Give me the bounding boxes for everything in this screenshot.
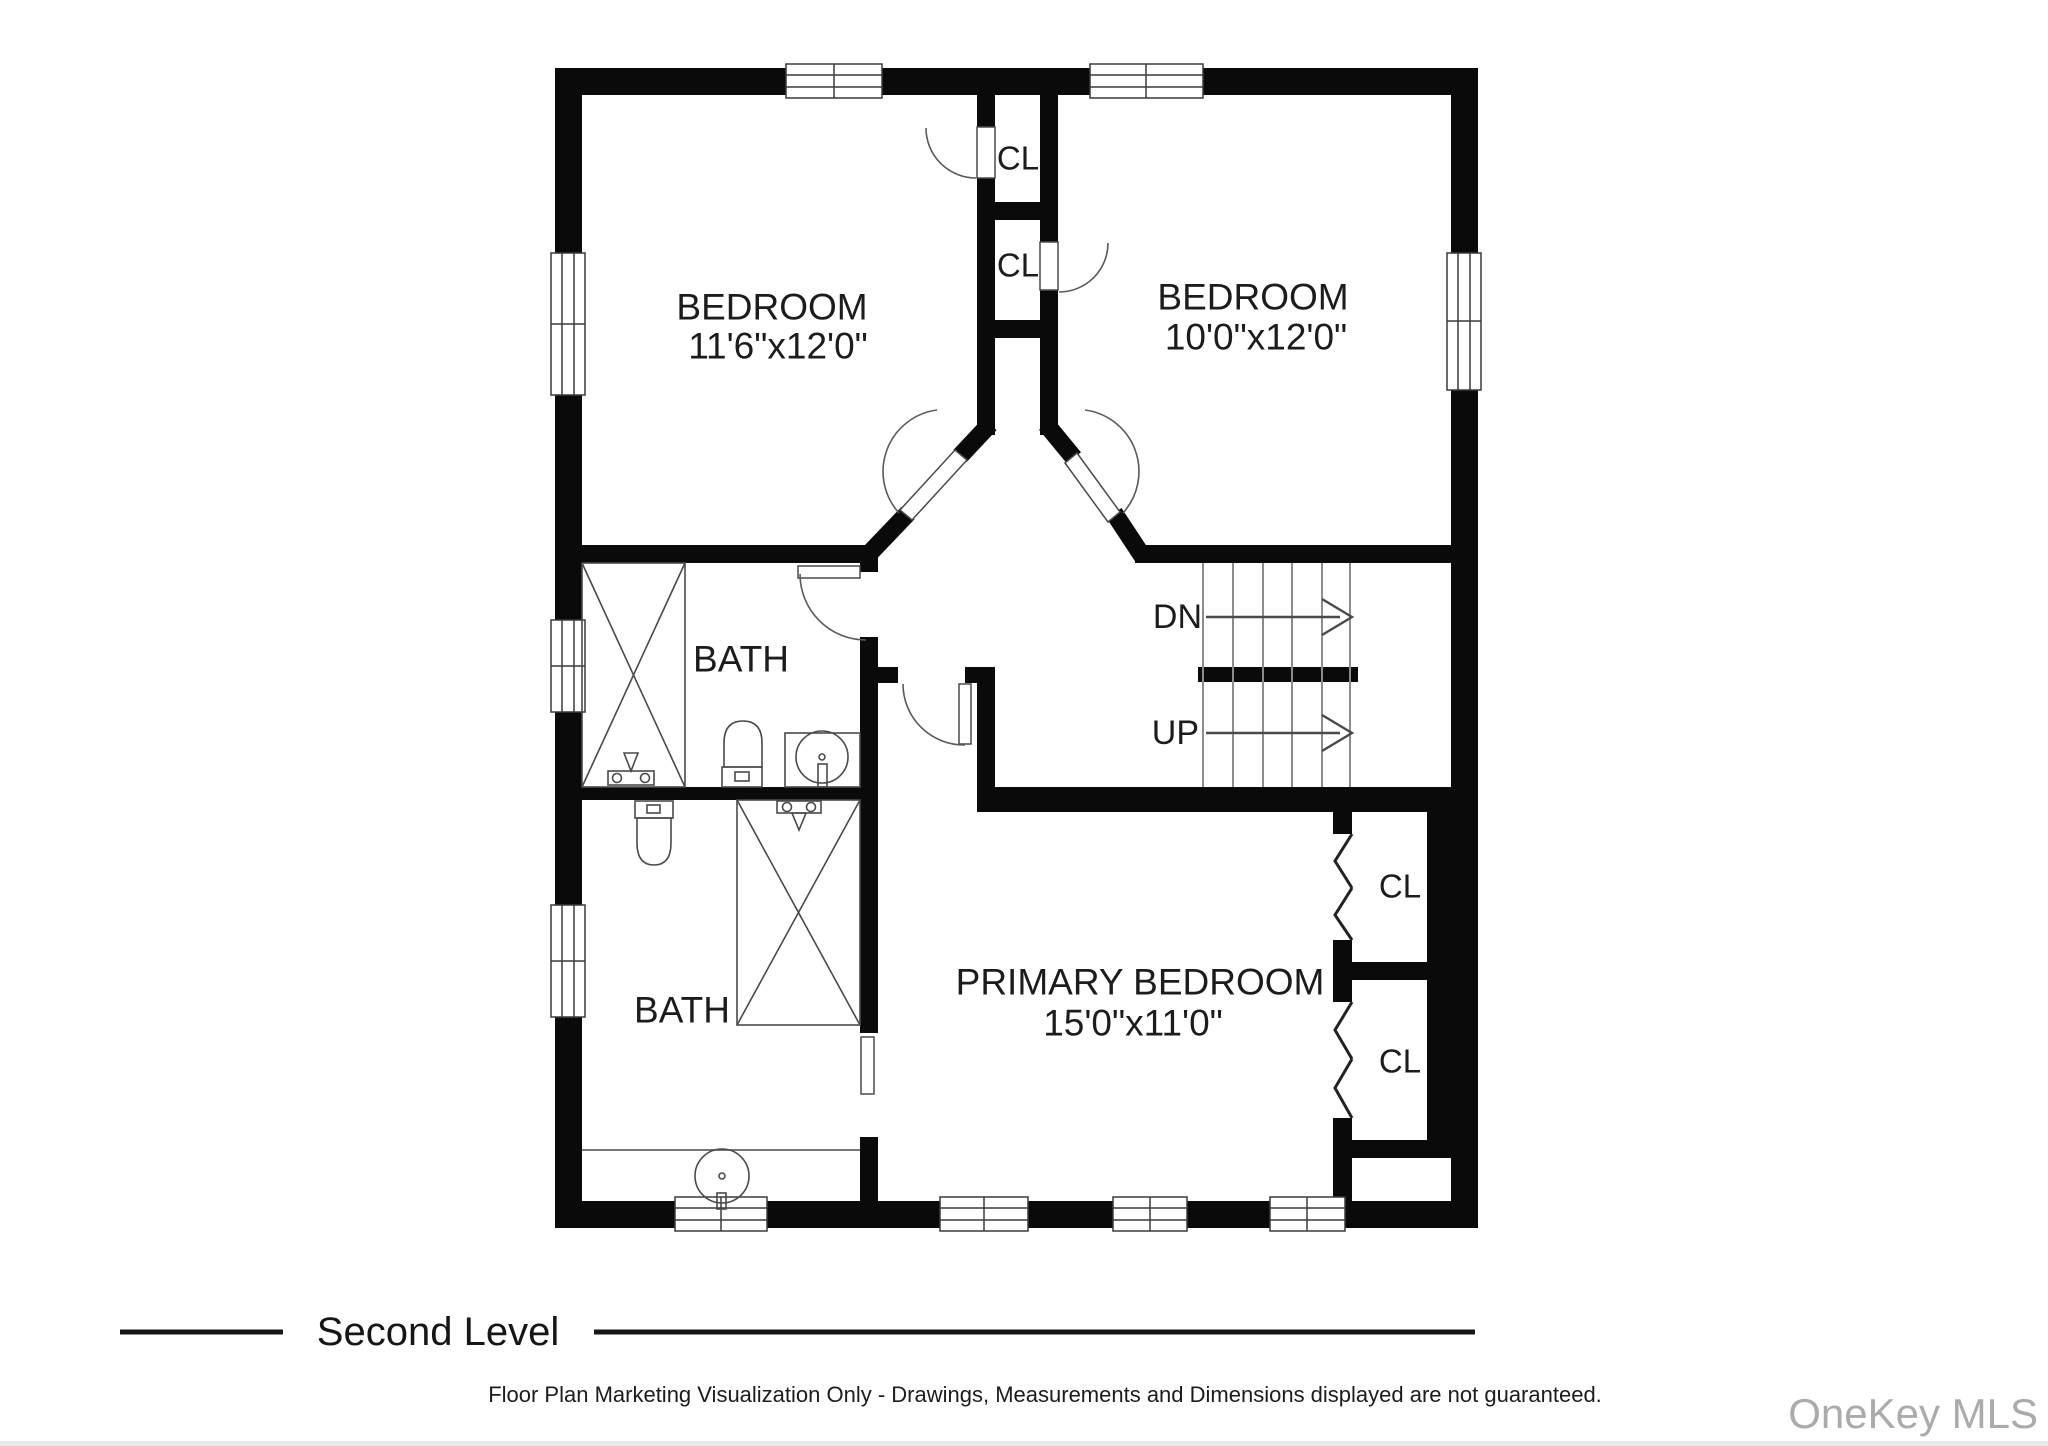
wall-segment <box>1451 68 1478 1228</box>
wall-segment <box>555 545 870 563</box>
room-labels: BEDROOM 11'6"x12'0" BEDROOM 10'0"x12'0" … <box>634 140 1421 1080</box>
closet-label-hall-upper: CL <box>997 140 1039 177</box>
wall-segment <box>1333 980 1352 1002</box>
wall-segment <box>1333 940 1352 962</box>
shower <box>582 563 685 787</box>
window <box>1113 1197 1187 1231</box>
stairs-up-label: UP <box>1152 714 1199 752</box>
wall-segment <box>555 68 1478 95</box>
bottom-strip <box>0 1441 2048 1446</box>
wall-segment <box>1427 812 1451 1158</box>
door-arc <box>1059 243 1108 292</box>
room-label-bedroom-right: BEDROOM <box>1157 277 1348 318</box>
disclaimer-text: Floor Plan Marketing Visualization Only … <box>488 1382 1602 1407</box>
wall-segment <box>1333 962 1451 980</box>
room-label-bath-lower: BATH <box>634 990 730 1031</box>
room-dims-primary-bedroom: 15'0"x11'0" <box>1043 1003 1223 1044</box>
door-arc <box>903 684 965 745</box>
door-leaf <box>900 450 967 520</box>
closet-label-hall-lower: CL <box>997 247 1039 284</box>
floor-plan: DN UP <box>0 0 2048 1446</box>
door-leaf <box>959 684 971 744</box>
wall-segment <box>1046 424 1074 458</box>
wall-segment <box>555 787 878 800</box>
wall-segment <box>977 320 1058 338</box>
wall-segment <box>860 1137 878 1203</box>
stairs-up-arrow <box>1206 715 1352 751</box>
room-dims-bedroom-right: 10'0"x12'0" <box>1165 317 1347 358</box>
level-label: Second Level <box>317 1310 559 1354</box>
wall-segment <box>860 667 898 683</box>
wall-segment <box>860 637 878 800</box>
door-leaf <box>798 566 860 578</box>
wall-segment <box>977 787 1451 812</box>
door-arc <box>926 128 976 178</box>
wall-segment <box>1333 1118 1352 1140</box>
bifold-door <box>1335 888 1352 940</box>
window <box>1447 253 1481 390</box>
door-leaf <box>1065 453 1120 522</box>
wall-segment <box>960 424 990 456</box>
wall-segment <box>1135 545 1451 563</box>
toilet <box>635 801 673 865</box>
door-arc <box>800 574 866 640</box>
door-leaf <box>1040 242 1058 290</box>
sink <box>785 731 860 787</box>
window <box>551 253 585 395</box>
window <box>675 1197 767 1231</box>
room-label-primary-bedroom: PRIMARY BEDROOM <box>956 962 1325 1003</box>
bifold-door <box>1335 1059 1352 1118</box>
footer: Second Level Floor Plan Marketing Visual… <box>0 1310 2048 1446</box>
watermark-text: OneKey MLS <box>1788 1390 2038 1437</box>
window <box>551 905 585 1017</box>
wall-segment <box>860 545 878 572</box>
wall-segment <box>1333 1140 1451 1158</box>
window <box>1090 64 1203 98</box>
wall-segment <box>1333 812 1352 834</box>
bifold-door <box>1335 1002 1352 1059</box>
wall-segment <box>1198 667 1358 682</box>
wall-segment <box>977 202 1058 220</box>
window <box>940 1197 1028 1231</box>
wall-segment <box>977 95 995 127</box>
room-dims-bedroom-left: 11'6"x12'0" <box>688 326 868 367</box>
toilet <box>722 721 762 787</box>
room-label-bath-middle: BATH <box>693 639 789 680</box>
stairs-down-arrow <box>1206 599 1352 635</box>
door-leaf <box>861 1037 874 1094</box>
closet-label-primary-lower: CL <box>1379 1043 1421 1080</box>
room-label-bedroom-left: BEDROOM <box>676 287 867 328</box>
floor-plan-page: DN UP <box>0 0 2048 1446</box>
stairs-down-label: DN <box>1153 598 1202 636</box>
bathtub <box>737 800 860 1025</box>
window <box>1270 1197 1345 1231</box>
bifold-door <box>1335 834 1352 888</box>
window <box>786 64 882 98</box>
windows <box>551 64 1481 1231</box>
wall-segment <box>1114 513 1143 557</box>
window <box>551 620 585 712</box>
closet-label-primary-upper: CL <box>1379 868 1421 905</box>
wall-segment <box>1040 290 1058 435</box>
door-leaf <box>977 127 995 178</box>
wall-segment <box>860 800 878 1033</box>
